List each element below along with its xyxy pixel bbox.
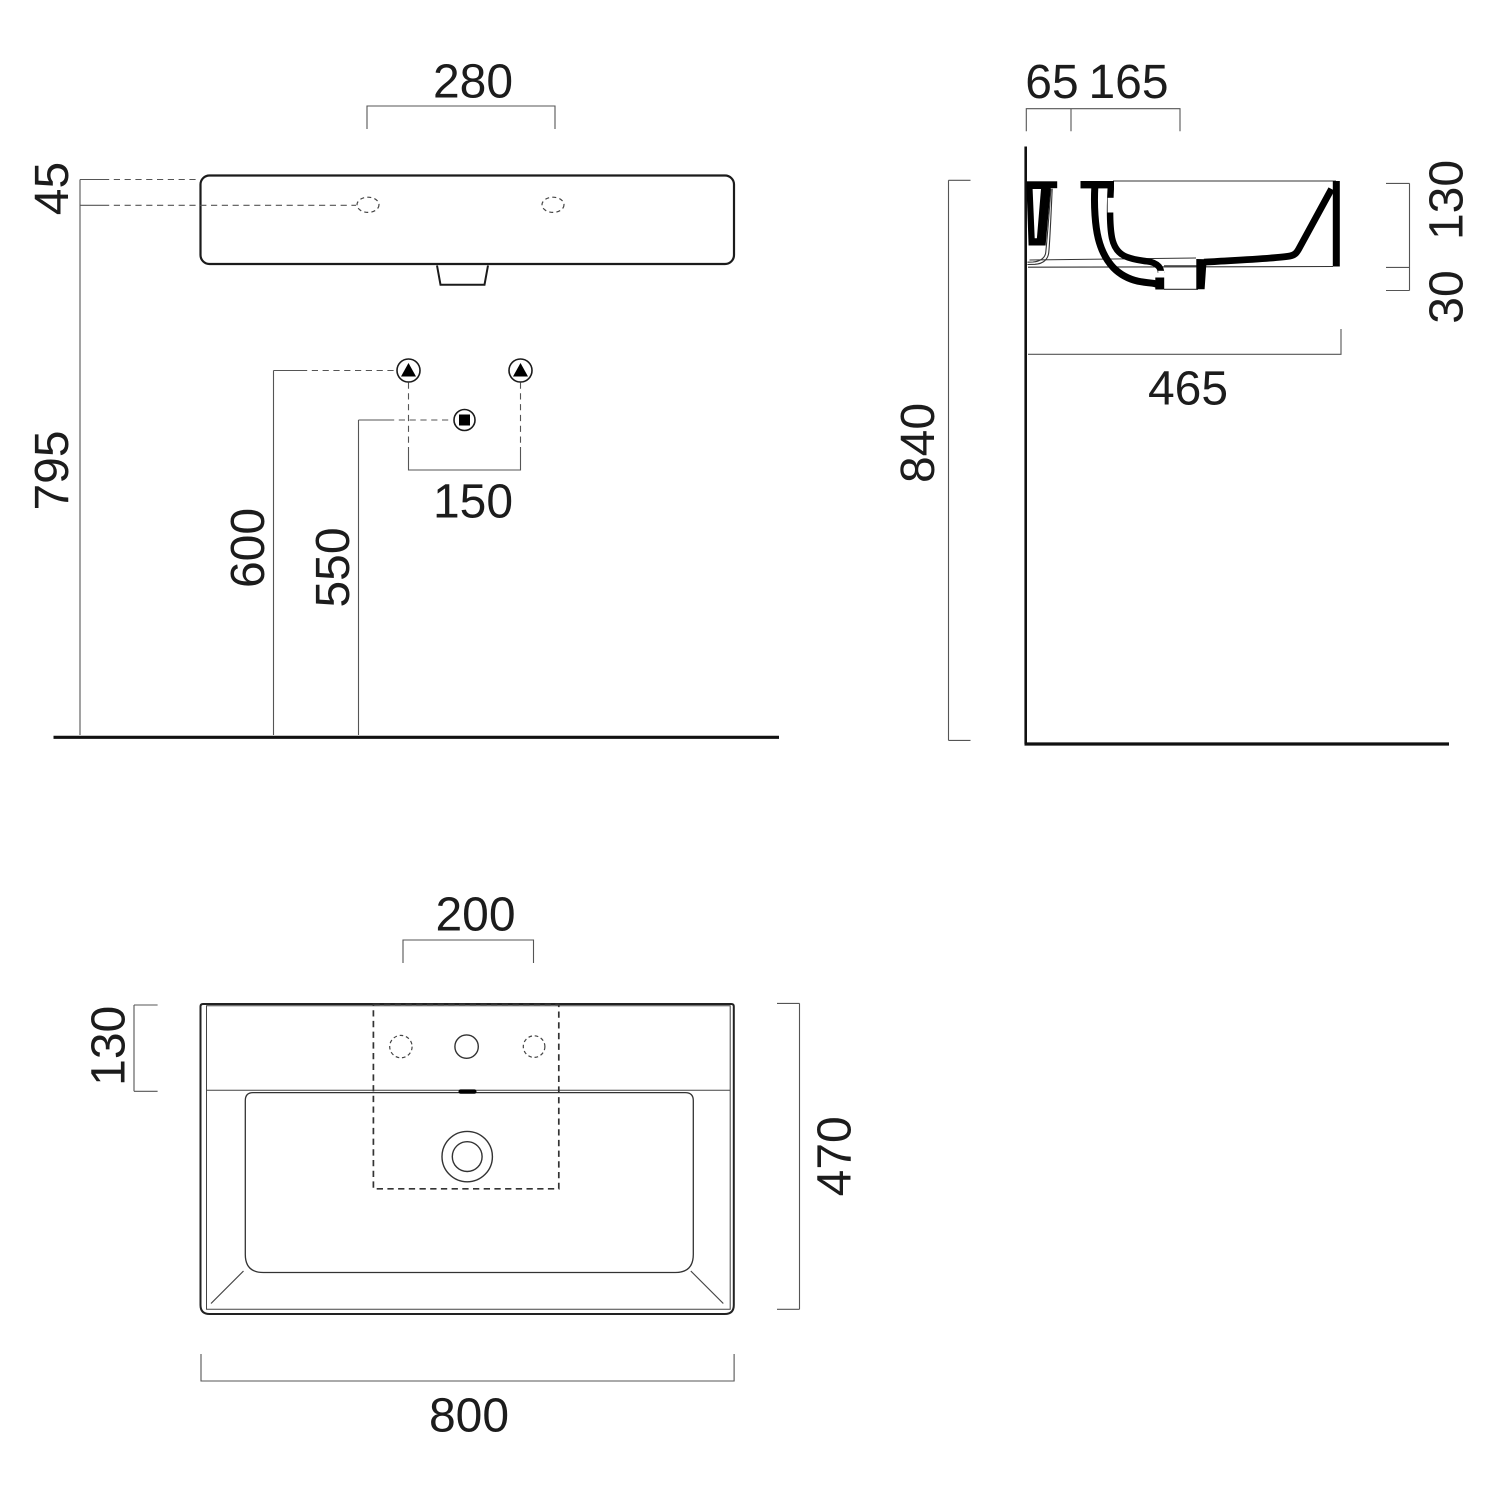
svg-text:65: 65 bbox=[1025, 56, 1078, 109]
svg-text:130: 130 bbox=[1421, 160, 1474, 240]
svg-text:130: 130 bbox=[83, 1006, 136, 1086]
svg-text:465: 465 bbox=[1148, 363, 1228, 416]
svg-text:550: 550 bbox=[307, 527, 360, 607]
svg-text:600: 600 bbox=[222, 508, 275, 588]
svg-text:280: 280 bbox=[433, 56, 513, 109]
svg-text:165: 165 bbox=[1088, 56, 1168, 109]
svg-text:800: 800 bbox=[429, 1390, 509, 1443]
svg-text:45: 45 bbox=[26, 162, 79, 215]
svg-text:840: 840 bbox=[892, 403, 945, 483]
svg-text:200: 200 bbox=[435, 889, 515, 942]
svg-text:795: 795 bbox=[26, 430, 79, 510]
svg-text:150: 150 bbox=[433, 476, 513, 529]
svg-text:30: 30 bbox=[1421, 270, 1474, 323]
svg-text:470: 470 bbox=[809, 1116, 862, 1196]
